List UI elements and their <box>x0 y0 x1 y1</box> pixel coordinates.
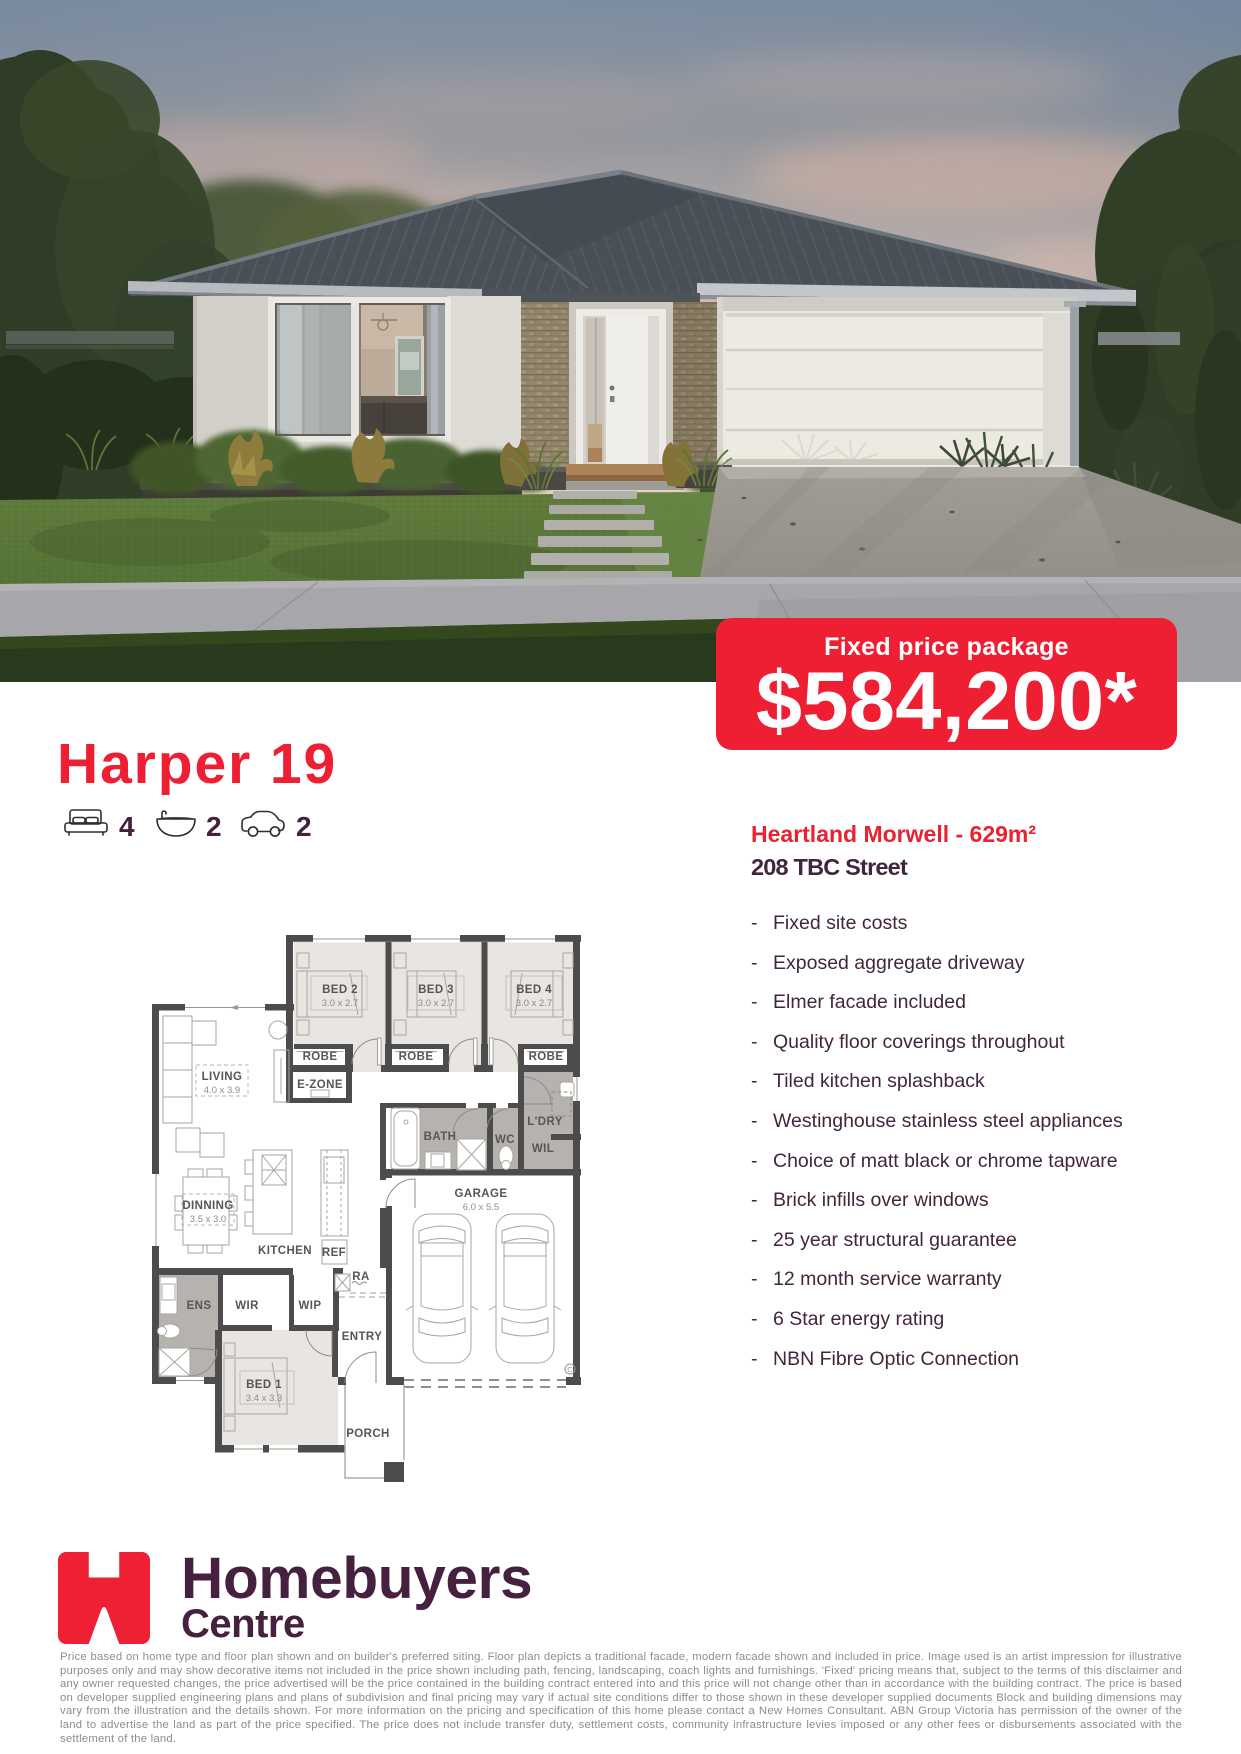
svg-text:ROBE: ROBE <box>303 1051 338 1063</box>
svg-text:LIVING: LIVING <box>202 1071 243 1083</box>
svg-text:ENTRY: ENTRY <box>342 1331 383 1343</box>
svg-text:ENS: ENS <box>187 1300 212 1312</box>
svg-text:PORCH: PORCH <box>346 1428 390 1440</box>
svg-text:3.0 x 2.7: 3.0 x 2.7 <box>516 998 552 1009</box>
svg-text:3.5 x 3.0: 3.5 x 3.0 <box>190 1214 226 1225</box>
svg-text:4.0 x 3.9: 4.0 x 3.9 <box>204 1085 240 1096</box>
svg-text:3.0 x 2.7: 3.0 x 2.7 <box>418 998 454 1009</box>
svg-text:GARAGE: GARAGE <box>455 1188 508 1200</box>
svg-text:2: 2 <box>296 811 312 842</box>
svg-text:6.0 x 5.5: 6.0 x 5.5 <box>463 1202 499 1213</box>
svg-text:ROBE: ROBE <box>529 1051 564 1063</box>
svg-text:4: 4 <box>119 811 135 842</box>
svg-text:BED 3: BED 3 <box>418 984 454 996</box>
svg-text:2: 2 <box>206 811 222 842</box>
svg-text:C: C <box>567 1365 573 1374</box>
svg-text:3.0 x 2.7: 3.0 x 2.7 <box>322 998 358 1009</box>
svg-text:ROBE: ROBE <box>399 1051 434 1063</box>
svg-text:E-ZONE: E-ZONE <box>297 1079 343 1091</box>
svg-text:RA: RA <box>352 1271 369 1283</box>
svg-text:KITCHEN: KITCHEN <box>258 1245 312 1257</box>
svg-text:WIL: WIL <box>532 1143 554 1155</box>
svg-text:3.4 x 3.3: 3.4 x 3.3 <box>246 1393 282 1404</box>
svg-text:WIP: WIP <box>299 1300 322 1312</box>
svg-text:BED 2: BED 2 <box>322 984 358 996</box>
svg-text:L'DRY: L'DRY <box>527 1116 563 1128</box>
svg-text:DINNING: DINNING <box>182 1200 233 1212</box>
svg-text:BED 1: BED 1 <box>246 1379 282 1391</box>
svg-text:WC: WC <box>495 1134 515 1146</box>
svg-text:BATH: BATH <box>424 1131 457 1143</box>
svg-text:BED 4: BED 4 <box>516 984 552 996</box>
svg-text:REF: REF <box>322 1247 346 1259</box>
svg-text:WIR: WIR <box>235 1300 259 1312</box>
